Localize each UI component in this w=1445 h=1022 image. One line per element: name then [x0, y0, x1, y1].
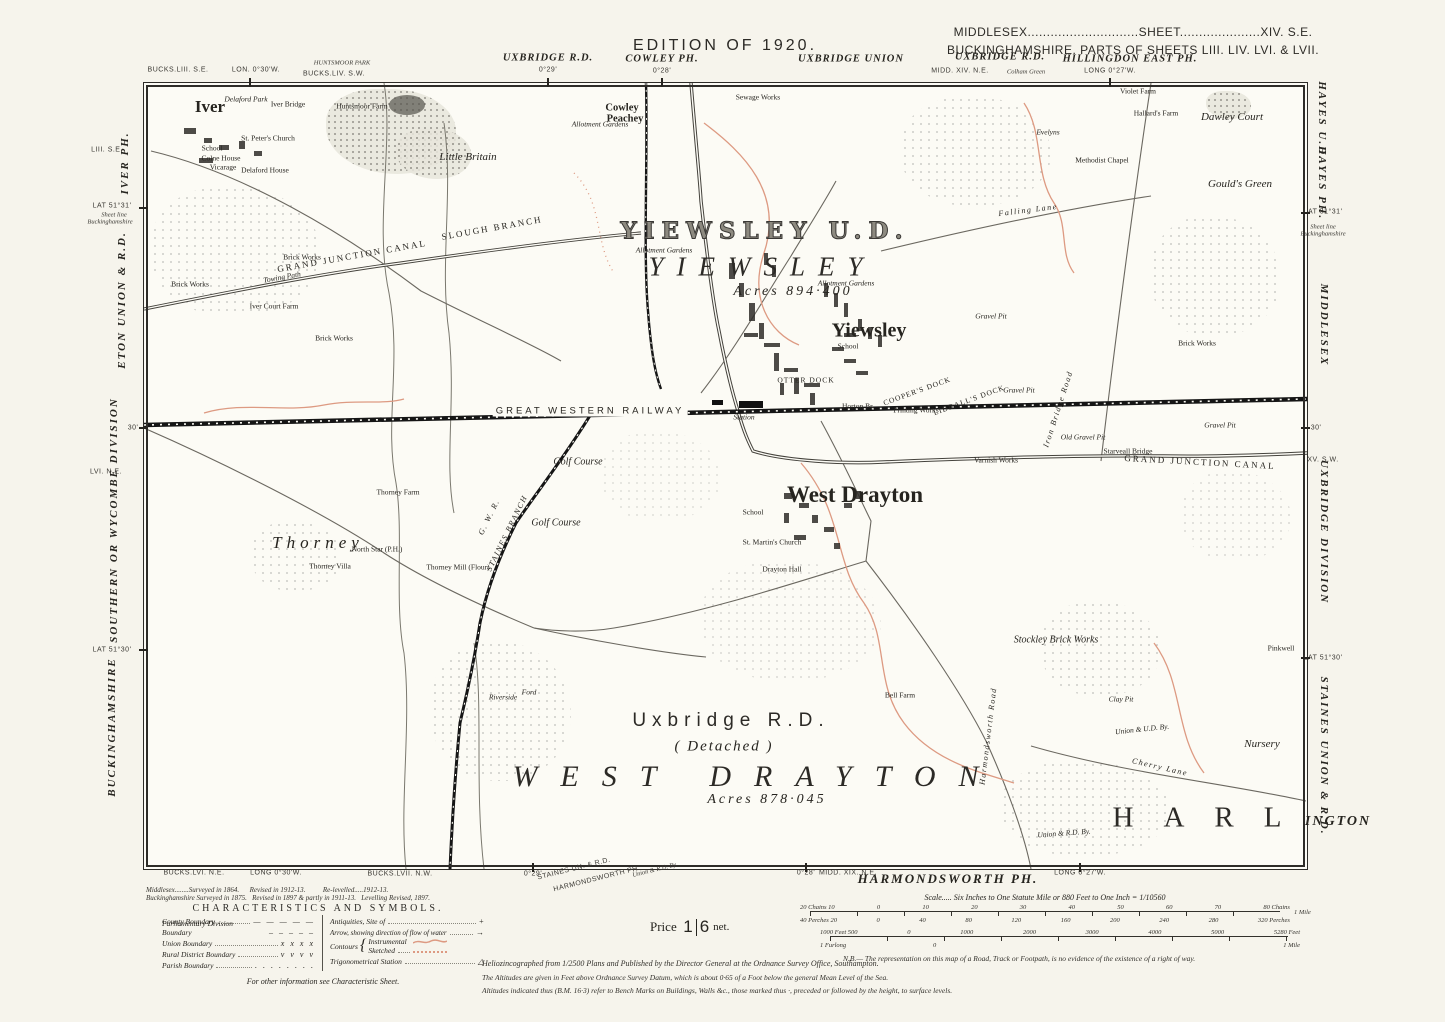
map-label: Brick Works [1178, 339, 1216, 348]
legend-leader-dots [216, 967, 252, 968]
legend-leader-dots [388, 923, 475, 924]
map-label: BUCKINGHAMSHIRE [106, 657, 118, 796]
map-label: LAT 51°31' [93, 203, 132, 210]
legend-label: Instrumental [368, 937, 406, 946]
legend-row-antiquities: Antiquities, Site of + [330, 915, 486, 926]
map-label: IVER PH. [119, 131, 131, 194]
legend-label: Antiquities, Site of [330, 917, 385, 926]
scale-tick-label: 1000 [960, 929, 973, 936]
scale-tick-label: 20 [971, 904, 978, 911]
scale-tick-label: 30 [1020, 904, 1027, 911]
legend-label: Trigonometrical Station [330, 957, 402, 966]
map-label: Colham Green [1007, 69, 1045, 76]
legend-left-column: County Boundary— — — — —Parliamentary Di… [162, 915, 315, 970]
legend-label: Parliamentary Division Boundary [162, 919, 263, 937]
map-label: Thorney Farm [376, 488, 419, 497]
map-label: School [202, 144, 223, 153]
map-label: Varnish Works [974, 456, 1018, 465]
map-label: Stockley Brick Works [1014, 635, 1099, 646]
scale-mile-label: 1 Mile [1294, 909, 1311, 916]
scale-tick-label: 5280 Feet [1274, 929, 1300, 936]
map-label: Sheet line [101, 212, 126, 219]
map-label: Sheet line [1310, 224, 1335, 231]
map-label: West Drayton [787, 482, 923, 508]
scale-tick-label: 40 [919, 917, 926, 924]
instrumental-contour-symbol [413, 938, 447, 946]
map-label: HUNTSMOOR PARK [314, 60, 370, 67]
map-label: Hallard's Farm [1134, 109, 1178, 118]
os-map-sheet: { "header": { "edition": "EDITION OF 192… [0, 0, 1445, 1022]
map-label: GREAT WESTERN RAILWAY [493, 406, 688, 417]
map-label: HARL [1113, 802, 1312, 835]
scale-bar1-top-labels: 20 Chains 1001020304050607080 Chains [800, 904, 1290, 911]
map-label: MIDD. XIV. N.E. [931, 68, 988, 75]
graticule-tick [1301, 212, 1310, 214]
legend-row: Parliamentary Division Boundary– – – – – [162, 926, 315, 937]
graticule-tick [1079, 863, 1081, 872]
map-label: Riverside [489, 693, 517, 702]
map-label: Brick Works [171, 280, 209, 289]
price-net: net. [713, 921, 729, 933]
survey-note-2: Buckinghamshire Surveyed in 1875. Revise… [146, 894, 430, 902]
price-shillings: 1 [683, 917, 692, 937]
flow-arrow-symbol: → [476, 928, 486, 937]
map-label: Golf Course [531, 518, 580, 529]
legend-title: CHARACTERISTICS AND SYMBOLS. [158, 903, 478, 914]
scale-tick-label: 1 Furlong [820, 942, 846, 949]
legend-row: Union Boundaryx x x x [162, 937, 315, 948]
map-label: Bell Farm [885, 691, 915, 700]
map-label: LAT 51°30' [93, 647, 132, 654]
map-label: Vicarage [210, 163, 237, 172]
scale-tick-label: 1 Mile [1283, 942, 1300, 949]
boundary-symbol: x x x x [281, 939, 315, 948]
map-label: Buckinghamshire [1300, 231, 1345, 238]
map-label: YIEWSLEY U.D. [620, 218, 909, 245]
map-label: Buckinghamshire [87, 219, 132, 226]
map-label: WEST DRAYTON [512, 760, 1001, 794]
legend-label: Parish Boundary [162, 961, 213, 970]
map-label: HILLINGDON EAST PH. [1063, 54, 1198, 65]
map-label: UXBRIDGE DIVISION [1318, 460, 1330, 604]
brace-glyph: { [360, 937, 366, 955]
scale-tick-label: 240 [1159, 917, 1169, 924]
legend-row-trig: Trigonometrical Station △ [330, 955, 486, 966]
scale-tick-label: 1000 Feet 500 [820, 929, 858, 936]
map-label: North Star (P.H.) [352, 545, 403, 554]
legend-label: Contours [330, 942, 358, 951]
scale-bar-feet [830, 936, 1288, 941]
boundary-symbol: – – – – – [269, 928, 315, 937]
legend-leader-dots [450, 934, 473, 935]
scale-tick-label: 80 [965, 917, 972, 924]
scale-tick-label: 0 [933, 942, 936, 949]
legend-footnote: For other information see Characteristic… [158, 977, 488, 986]
graticule-tick [1109, 78, 1111, 87]
scale-tick-label: 5000 [1211, 929, 1224, 936]
imprint-line-2: The Altitudes are given in Feet above Or… [482, 973, 888, 982]
map-label: Methodist Chapel [1075, 156, 1129, 165]
map-label: SOUTHERN OR WYCOMBE DIVISION [108, 397, 120, 643]
map-label: BUCKS.LIV. S.W. [303, 71, 365, 78]
map-label: ETON UNION & R.D. [116, 231, 128, 368]
map-label: Printing Works [893, 406, 938, 415]
map-label: Starveall Bridge [1104, 447, 1153, 456]
scale-tick-label: 0 [907, 929, 910, 936]
survey-note-1: Middlesex........Surveyed in 1864. Revis… [146, 886, 388, 894]
graticule-tick [139, 427, 148, 429]
scale-tick-label: 70 [1215, 904, 1222, 911]
graticule-tick [249, 78, 251, 87]
map-label: Delaford Park [224, 95, 267, 104]
scale-tick-label: 4000 [1148, 929, 1161, 936]
imprint-line-1: Heliozincographed from 1/2500 Plans and … [482, 959, 879, 968]
legend-leader-dots [238, 956, 277, 957]
scale-tick-label: 0 [877, 904, 880, 911]
map-label: BUCKS.LVII. N.W. [367, 871, 432, 878]
map-label: Acres 878·045 [707, 792, 826, 808]
legend-row-arrow: Arrow, showing direction of flow of wate… [330, 926, 486, 937]
map-label: 30' [128, 425, 139, 432]
scale-bar-chains [810, 911, 1280, 916]
map-label: Thorney Villa [309, 562, 351, 571]
map-label: 30' [1311, 425, 1322, 432]
scale-tick-label: 20 Chains 10 [800, 904, 835, 911]
map-label: UXBRIDGE UNION [798, 54, 904, 65]
legend-divider [322, 915, 323, 971]
map-label: Cowley [605, 103, 638, 114]
map-label: St. Martin's Church [743, 538, 802, 547]
map-label: Drayton Hall [762, 565, 801, 574]
map-label: 0°28' [653, 68, 671, 75]
boundary-symbol: . . . . . . . . [255, 961, 315, 970]
map-label: Iver [195, 97, 225, 117]
legend-label: Arrow, showing direction of flow of wate… [330, 929, 447, 937]
map-label: LONG 0°27'W. [1084, 68, 1136, 75]
map-label: ( Detached ) [675, 739, 774, 756]
graticule-tick [139, 207, 148, 209]
map-label: Ford [522, 688, 537, 697]
map-label: Gravel Pit [1003, 386, 1034, 395]
map-label: Huntsmoor Farm [336, 102, 387, 111]
boundary-symbol: v v v v [281, 950, 315, 959]
antiquities-symbol: + [479, 917, 486, 926]
scale-tick-label: 160 [1061, 917, 1071, 924]
map-label: School [838, 342, 859, 351]
map-label: STAINES UNION & R.D. [1318, 677, 1330, 836]
scale-tick-label: 80 Chains [1263, 904, 1290, 911]
scale-bar1-bottom-labels: 40 Perches 2004080120160200240280320 Per… [800, 917, 1290, 924]
map-label: St. Peter's Church [241, 134, 295, 143]
legend-label: Rural District Boundary [162, 950, 235, 959]
price: Price 1 6 net. [650, 917, 729, 937]
map-label: Evelyns [1036, 128, 1059, 137]
scale-caption: Scale..... Six Inches to One Statute Mil… [810, 893, 1280, 902]
map-label: Sewage Works [736, 93, 780, 102]
map-label: Allotment Gardens [818, 279, 875, 288]
graticule-tick [1301, 427, 1310, 429]
map-label: Gould's Green [1208, 178, 1272, 190]
map-label: Pinkwell [1268, 644, 1295, 653]
scale-bar2-top-labels: 1000 Feet 5000100020003000400050005280 F… [820, 929, 1300, 936]
map-label: Allotment Gardens [636, 246, 693, 255]
legend-label: Sketched [368, 946, 395, 955]
sketched-contour-symbol [413, 951, 447, 953]
map-label: Yiewsley [832, 320, 907, 343]
price-word: Price [650, 919, 677, 935]
legend-label: Union Boundary [162, 939, 212, 948]
graticule-tick [661, 78, 663, 87]
map-label: Nursery [1244, 738, 1279, 750]
legend-leader-dots [398, 952, 410, 953]
sheet-ref-middlesex: MIDDLESEX.............................SH… [954, 25, 1313, 39]
scale-tick-label: 0 [877, 917, 880, 924]
map-label: BUCKS.LIII. S.E. [148, 67, 209, 74]
price-pence: 6 [700, 917, 709, 937]
graticule-tick [139, 649, 148, 651]
map-label: Uxbridge R.D. [632, 710, 829, 732]
map-label: LONG 0°30'W. [250, 870, 302, 877]
map-label: School [743, 508, 764, 517]
legend-row-contour-instrumental: Instrumental [368, 937, 446, 946]
legend-leader-dots [215, 945, 278, 946]
map-label: OTTER DOCK [777, 376, 834, 385]
map-label: Gravel Pit [975, 312, 1006, 321]
map-label: Iver Court Farm [250, 302, 299, 311]
rights-of-way-note: N.B.— The representation on this map of … [843, 954, 1305, 963]
legend-row-contours: Contours { Instrumental Sketched [330, 937, 486, 955]
scale-tick-label: 320 Perches [1258, 917, 1290, 924]
graticule-tick [532, 863, 534, 872]
graticule-tick [547, 78, 549, 87]
map-label: Thorney Mill (Flour) [426, 563, 489, 572]
scale-tick-label: 2000 [1023, 929, 1036, 936]
scale-tick-label: 120 [1011, 917, 1021, 924]
price-divider [696, 919, 697, 936]
legend-row: Rural District Boundaryv v v v [162, 948, 315, 959]
map-label: Clay Pit [1109, 695, 1134, 704]
graticule-tick [1301, 657, 1310, 659]
graticule-tick [805, 863, 807, 872]
legend-leader-dots [405, 963, 475, 964]
map-label: HARMONDSWORTH PH. [858, 871, 1039, 887]
scale-tick-label: 10 [922, 904, 929, 911]
map-label: Brick Works [315, 334, 353, 343]
map-label: Iver Bridge [271, 100, 305, 109]
map-label: UXBRIDGE R.D. [503, 53, 593, 64]
map-label: MIDDLESEX [1318, 284, 1330, 367]
map-label: Golf Course [553, 457, 602, 468]
map-label: Station [733, 413, 754, 422]
scale-tick-label: 50 [1117, 904, 1124, 911]
scale-tick-label: 3000 [1086, 929, 1099, 936]
scale-bar2-bottom-labels: 1 Furlong01 Mile [820, 942, 1300, 949]
scale-tick-label: 40 [1069, 904, 1076, 911]
map-label: Allotment Gardens [572, 120, 629, 129]
scale-tick-label: 200 [1110, 917, 1120, 924]
map-label: Gravel Pit [1204, 421, 1235, 430]
map-label: 0°29' [539, 67, 557, 74]
legend-row-contour-sketched: Sketched [368, 946, 446, 955]
map-label: INGTON [1305, 814, 1371, 830]
map-label: Old Gravel Pit [1061, 433, 1106, 442]
map-label: Horton Br. [842, 402, 874, 411]
map-label: Delaford House [241, 166, 289, 175]
edition-title: EDITION OF 1920. [633, 37, 817, 55]
map-label: Little Britain [439, 151, 496, 163]
map-label: BUCKS.LVI. N.E. [163, 870, 224, 877]
imprint-line-3: Altitudes indicated thus (B.M. 16·3) ref… [482, 986, 952, 995]
map-label: Thorney [272, 533, 364, 553]
scale-tick-label: 40 Perches 20 [800, 917, 837, 924]
legend-row: Parish Boundary. . . . . . . . [162, 959, 315, 970]
map-label: Colne House [202, 154, 241, 163]
map-label: LON. 0°30'W. [232, 67, 280, 74]
map-label: Dawley Court [1201, 111, 1263, 123]
map-label: UXBRIDGE R.D. [955, 52, 1045, 63]
scale-tick-label: 60 [1166, 904, 1173, 911]
map-label: COWLEY PH. [625, 54, 698, 65]
map-label: Violet Farm [1120, 87, 1156, 96]
legend-right-column: Antiquities, Site of + Arrow, showing di… [330, 915, 486, 966]
scale-tick-label: 280 [1209, 917, 1219, 924]
